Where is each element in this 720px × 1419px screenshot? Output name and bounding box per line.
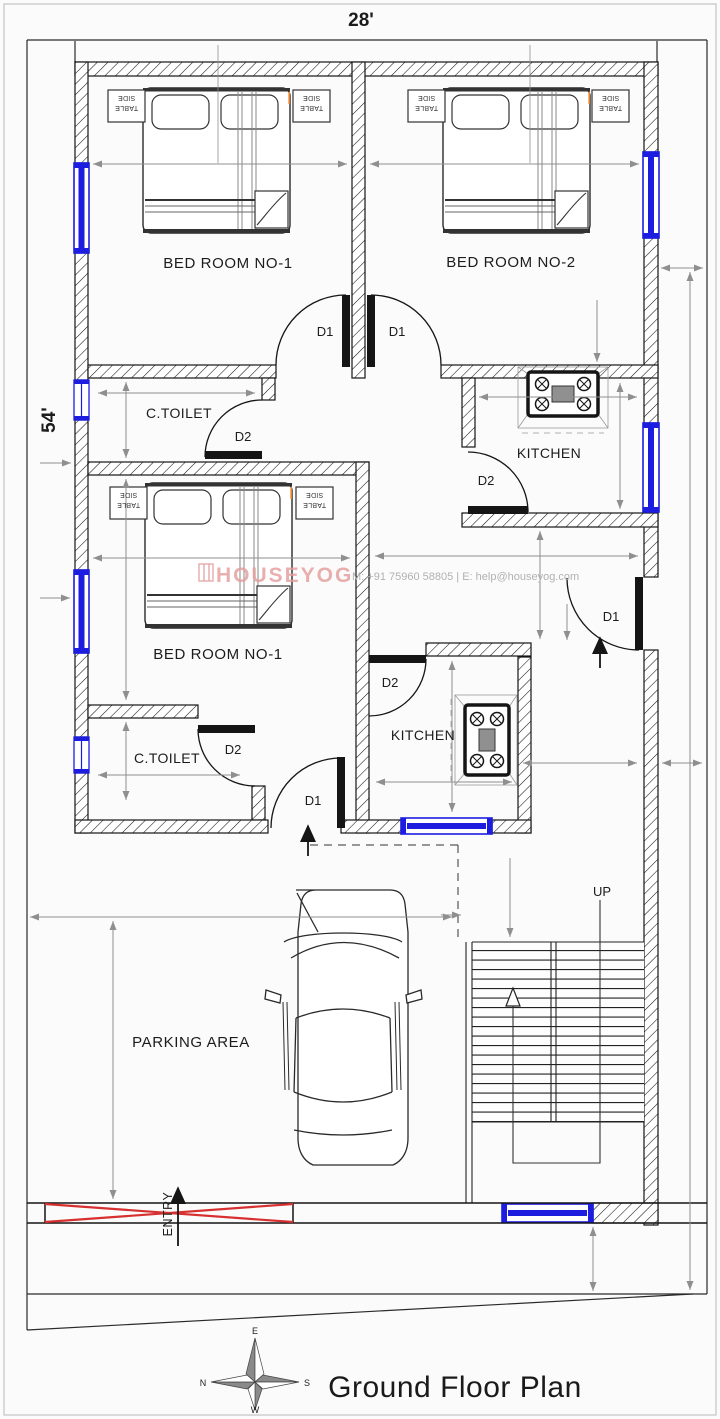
stairs-up-label: UP bbox=[593, 884, 611, 899]
side-table-label: TABLE bbox=[415, 104, 438, 111]
watermark-brand: HOUSEYOG bbox=[216, 564, 353, 587]
page-title: Ground Floor Plan bbox=[328, 1371, 582, 1404]
window-right-bedroom2 bbox=[643, 152, 659, 238]
compass-north: N bbox=[200, 1378, 207, 1388]
stove-icon bbox=[465, 705, 509, 775]
room-label-bedroom-top-left: BED ROOM NO-1 bbox=[163, 255, 292, 272]
floor-plan-canvas: BED ROOM NO-1 BED ROOM NO-2 BED ROOM NO-… bbox=[0, 0, 720, 1419]
window-left-toilet1 bbox=[74, 380, 89, 420]
compass-west: W bbox=[251, 1405, 260, 1415]
door-label-d1: D1 bbox=[603, 609, 620, 624]
side-table-label: SIDE bbox=[118, 94, 136, 101]
side-table-label: SIDE bbox=[303, 94, 321, 101]
door-label-d2: D2 bbox=[382, 675, 399, 690]
room-label-toilet-bottom: C.TOILET bbox=[134, 750, 200, 766]
door-label-d1: D1 bbox=[305, 793, 322, 808]
side-table-label: SIDE bbox=[602, 94, 620, 101]
watermark-contact: M: +91 75960 58805 | E: help@houseyog.co… bbox=[352, 571, 579, 583]
door-label-d2: D2 bbox=[235, 429, 252, 444]
side-table-label: SIDE bbox=[418, 94, 436, 101]
door-label-d2: D2 bbox=[225, 742, 242, 757]
window-entry-wall bbox=[502, 1204, 593, 1222]
room-label-bedroom-middle: BED ROOM NO-1 bbox=[153, 646, 282, 663]
side-table-label: SIDE bbox=[306, 491, 324, 498]
door-label-d2: D2 bbox=[478, 473, 495, 488]
window-left-bedroom1 bbox=[74, 163, 89, 253]
entry-label: ENTRY bbox=[161, 1192, 175, 1237]
side-table-label: TABLE bbox=[117, 501, 140, 508]
plot-width-label: 28' bbox=[348, 10, 374, 31]
bed-icon bbox=[145, 483, 292, 628]
window-left-toilet2 bbox=[74, 737, 89, 773]
room-label-parking: PARKING AREA bbox=[132, 1034, 250, 1051]
side-table-label: TABLE bbox=[599, 104, 622, 111]
stove-icon bbox=[528, 372, 598, 416]
plot-depth-label: 54' bbox=[39, 407, 60, 433]
compass-south: S bbox=[304, 1378, 310, 1388]
bed-icon bbox=[443, 88, 590, 233]
side-table-label: TABLE bbox=[115, 104, 138, 111]
bed-icon bbox=[143, 88, 290, 233]
side-table-label: TABLE bbox=[303, 501, 326, 508]
window-left-bedroom3 bbox=[74, 570, 89, 653]
window-right-kitchen1 bbox=[643, 423, 659, 512]
window-bottom-kitchen2 bbox=[401, 818, 492, 834]
floor-plan-drawing: BED ROOM NO-1 BED ROOM NO-2 BED ROOM NO-… bbox=[0, 0, 720, 1419]
room-label-kitchen-bottom: KITCHEN bbox=[391, 727, 455, 743]
door-label-d1: D1 bbox=[389, 324, 406, 339]
door-label-d1: D1 bbox=[317, 324, 334, 339]
room-label-kitchen-top: KITCHEN bbox=[517, 445, 581, 461]
compass-east: E bbox=[252, 1326, 258, 1336]
side-table-label: SIDE bbox=[120, 491, 138, 498]
room-label-toilet-top: C.TOILET bbox=[146, 405, 212, 421]
side-table-label: TABLE bbox=[300, 104, 323, 111]
room-label-bedroom-top-right: BED ROOM NO-2 bbox=[446, 254, 575, 271]
